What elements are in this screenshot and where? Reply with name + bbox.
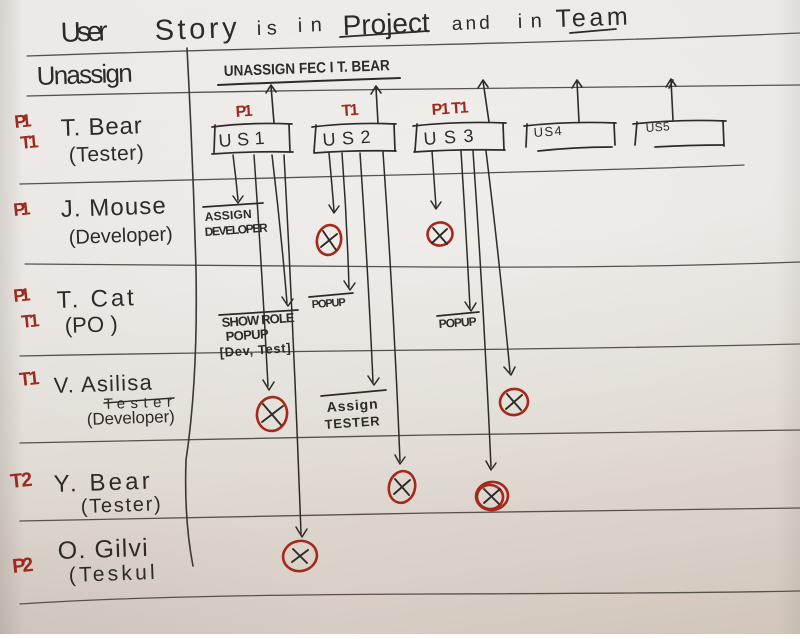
- svg-text:(Developer): (Developer): [68, 223, 173, 249]
- svg-text:P1: P1: [235, 103, 253, 121]
- svg-text:(Teskul: (Teskul: [68, 561, 155, 587]
- svg-text:T1: T1: [19, 131, 39, 153]
- svg-text:V. Asilisa: V. Asilisa: [53, 370, 153, 398]
- svg-text:(Tester): (Tester): [68, 141, 144, 167]
- svg-text:O. Gilvi: O. Gilvi: [57, 534, 148, 565]
- svg-text:T1: T1: [341, 102, 359, 120]
- svg-text:T. Cat: T. Cat: [56, 284, 134, 314]
- svg-text:is: is: [256, 17, 277, 40]
- svg-text:US3: US3: [423, 126, 474, 149]
- svg-text:in: in: [517, 10, 542, 33]
- svg-text:Story: Story: [154, 12, 238, 47]
- svg-text:T. Bear: T. Bear: [60, 112, 142, 142]
- svg-text:J. Mouse: J. Mouse: [60, 192, 166, 223]
- svg-text:US2: US2: [322, 127, 371, 150]
- svg-text:Unassign: Unassign: [36, 58, 133, 91]
- svg-text:T1: T1: [18, 368, 41, 391]
- svg-text:US5: US5: [645, 119, 670, 135]
- svg-text:US4: US4: [533, 123, 562, 140]
- svg-text:(Tester): (Tester): [80, 493, 161, 518]
- svg-text:in: in: [297, 14, 322, 37]
- svg-text:Assign: Assign: [326, 395, 378, 415]
- svg-text:User: User: [60, 15, 108, 48]
- svg-text:P1: P1: [12, 284, 31, 306]
- svg-text:P2: P2: [11, 554, 34, 578]
- svg-text:Team: Team: [555, 3, 628, 33]
- svg-text:POPUP: POPUP: [311, 297, 346, 311]
- svg-text:UNASSIGN FEC I T. BEAR: UNASSIGN FEC I T. BEAR: [224, 57, 391, 80]
- svg-text:(PO ): (PO ): [64, 311, 118, 338]
- svg-text:US1: US1: [218, 128, 265, 151]
- svg-text:POPUP: POPUP: [438, 314, 477, 331]
- svg-text:T2: T2: [9, 469, 33, 493]
- svg-text:P1: P1: [13, 110, 32, 132]
- svg-text:T1: T1: [20, 310, 40, 332]
- svg-text:(Developer): (Developer): [86, 407, 175, 429]
- svg-text:P1 T1: P1 T1: [431, 99, 469, 119]
- svg-text:P1: P1: [12, 198, 31, 220]
- svg-text:and: and: [451, 13, 490, 35]
- svg-text:TESTER: TESTER: [324, 413, 381, 432]
